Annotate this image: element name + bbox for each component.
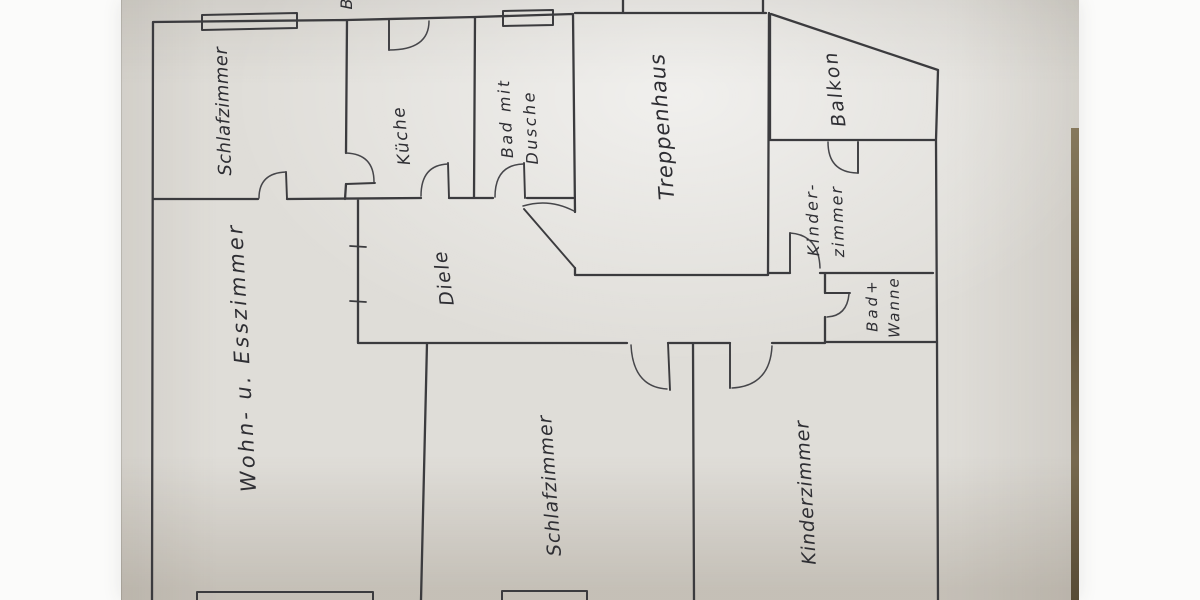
floorplan-drawing: Schlafzimmer Küche Bad mit Dusche Treppe…: [0, 0, 1200, 600]
room-label-bad-mit-dusche-line1: Bad mit: [494, 78, 517, 159]
room-label-diele: Diele: [429, 249, 459, 308]
room-label-schlafzimmer-unten: Schlafzimmer: [534, 414, 566, 557]
room-label-bad-wanne-line1: Bad+: [863, 278, 882, 332]
room-label-kinderzimmer-unten: Kinderzimmer: [791, 419, 821, 565]
room-label-kinderzimmer-oben-line2: zimmer: [827, 185, 849, 259]
room-label-treppenhaus: Treppenhaus: [645, 52, 679, 200]
door-leaves: [286, 20, 858, 390]
room-label-wohn-esszimmer: Wohn- u. Esszimmer: [223, 222, 261, 493]
partial-balkon-label: B: [337, 0, 356, 9]
room-label-kinderzimmer-oben-line1: Kinder-: [802, 182, 824, 257]
room-label-kueche: Küche: [389, 105, 415, 166]
room-label-schlafzimmer-oben: Schlafzimmer: [211, 45, 237, 176]
floorplan-photo: Schlafzimmer Küche Bad mit Dusche Treppe…: [0, 0, 1200, 600]
room-label-bad-wanne-line2: Wanne: [884, 276, 903, 338]
room-label-balkon: Balkon: [819, 49, 850, 128]
room-label-bad-mit-dusche-line2: Dusche: [519, 90, 542, 165]
